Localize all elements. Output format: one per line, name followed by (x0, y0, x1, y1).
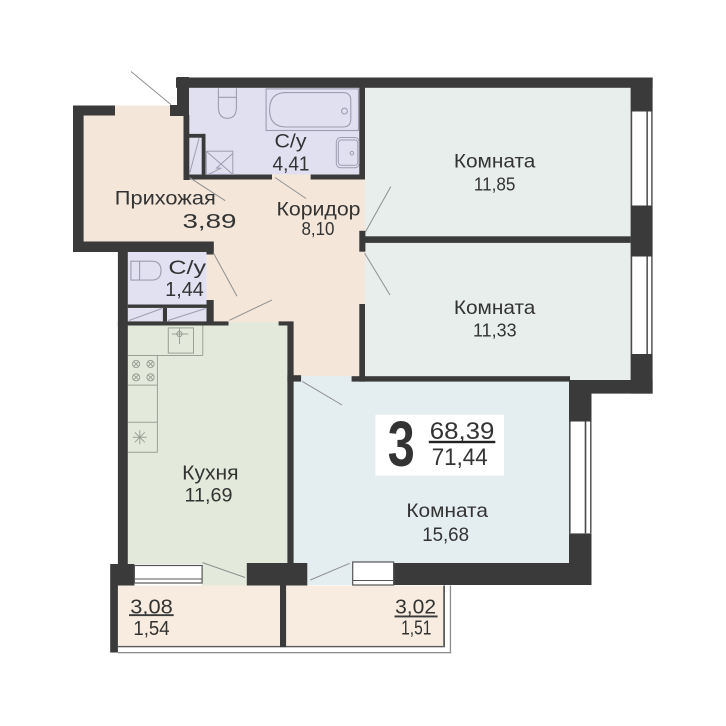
svg-text:3,02: 3,02 (395, 596, 436, 618)
svg-text:Комната: Комната (454, 150, 536, 172)
svg-text:Комната: Комната (454, 297, 536, 319)
svg-text:3,89: 3,89 (183, 210, 237, 233)
svg-text:Коридор: Коридор (277, 198, 361, 220)
svg-text:1,51: 1,51 (401, 618, 431, 640)
svg-text:С/у: С/у (168, 257, 206, 279)
svg-text:71,44: 71,44 (432, 444, 488, 471)
svg-text:11,85: 11,85 (474, 174, 516, 195)
svg-text:Кухня: Кухня (182, 463, 238, 485)
svg-text:8,10: 8,10 (302, 219, 335, 239)
svg-text:Прихожая: Прихожая (115, 187, 216, 209)
svg-text:15,68: 15,68 (422, 524, 469, 546)
svg-text:С/у: С/у (275, 131, 307, 153)
svg-text:11,33: 11,33 (473, 320, 517, 341)
svg-text:3: 3 (388, 408, 415, 480)
svg-text:1,44: 1,44 (165, 279, 204, 301)
svg-text:Комната: Комната (406, 500, 488, 522)
svg-text:4,41: 4,41 (273, 154, 310, 176)
svg-text:11,69: 11,69 (185, 485, 233, 507)
svg-text:1,54: 1,54 (133, 618, 169, 640)
